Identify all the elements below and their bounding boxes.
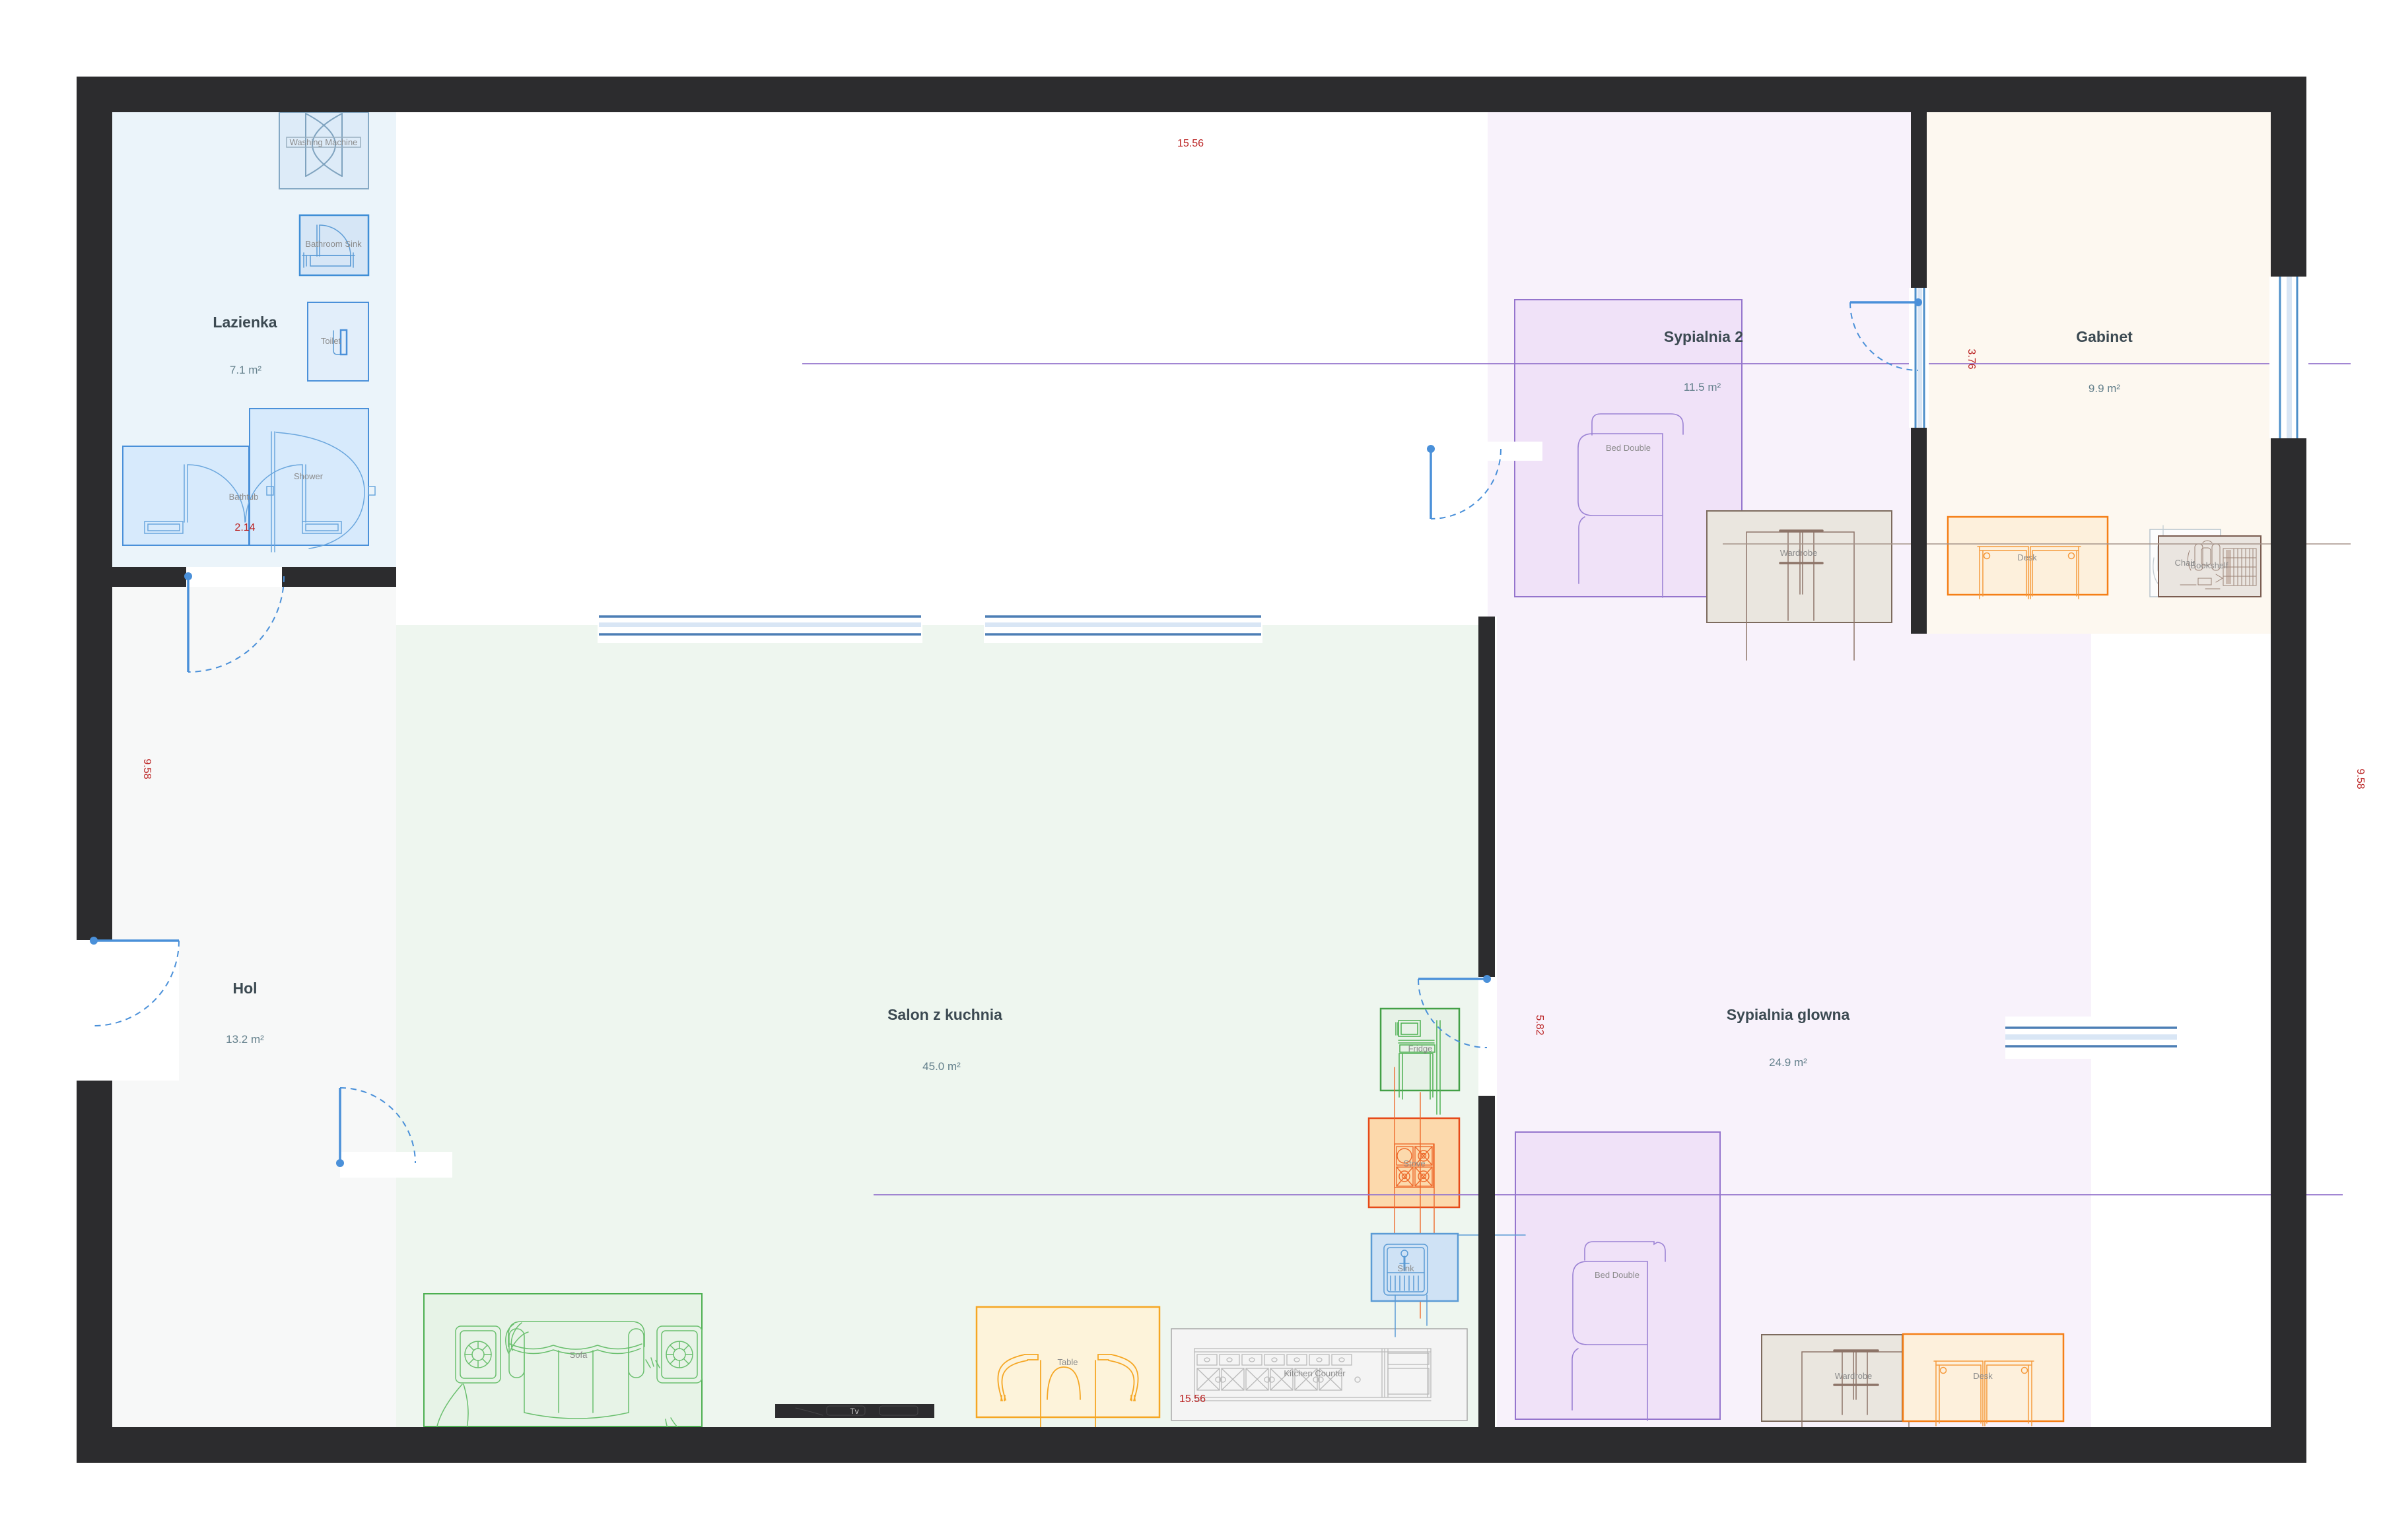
svg-text:Bed Double: Bed Double <box>1595 1270 1640 1280</box>
svg-text:15.56: 15.56 <box>1177 138 1204 149</box>
svg-text:11.5 m²: 11.5 m² <box>1684 381 1721 393</box>
svg-text:Sink: Sink <box>1397 1263 1414 1273</box>
svg-text:Sypialnia 2: Sypialnia 2 <box>1664 328 1743 345</box>
svg-text:Toilet: Toilet <box>321 336 341 346</box>
svg-text:Washing Machine: Washing Machine <box>290 137 358 147</box>
svg-text:3.76: 3.76 <box>1966 349 1977 369</box>
svg-text:Wardrobe: Wardrobe <box>1835 1371 1873 1381</box>
svg-text:7.1 m²: 7.1 m² <box>230 364 262 376</box>
svg-text:15.56: 15.56 <box>1179 1393 1206 1405</box>
svg-text:Bathroom Sink: Bathroom Sink <box>305 239 362 249</box>
svg-text:Bathtub: Bathtub <box>229 492 259 502</box>
svg-text:Stove: Stove <box>1403 1158 1425 1168</box>
svg-text:13.2 m²: 13.2 m² <box>226 1033 264 1046</box>
svg-text:Salon z kuchnia: Salon z kuchnia <box>887 1006 1002 1023</box>
svg-text:Gabinet: Gabinet <box>2076 328 2133 345</box>
svg-text:Kitchen Counter: Kitchen Counter <box>1284 1368 1346 1378</box>
svg-text:5.82: 5.82 <box>1534 1015 1545 1035</box>
svg-text:9.58: 9.58 <box>141 758 153 779</box>
svg-text:9.9 m²: 9.9 m² <box>2089 382 2121 395</box>
svg-text:24.9 m²: 24.9 m² <box>1769 1056 1807 1069</box>
svg-text:45.0 m²: 45.0 m² <box>922 1060 961 1073</box>
svg-text:2.14: 2.14 <box>234 522 255 533</box>
svg-text:Sofa: Sofa <box>570 1350 588 1360</box>
svg-text:Sypialnia glowna: Sypialnia glowna <box>1727 1006 1850 1023</box>
svg-text:Desk: Desk <box>2017 552 2037 562</box>
svg-text:Fridge: Fridge <box>1408 1044 1433 1054</box>
svg-text:Lazienka: Lazienka <box>213 314 277 331</box>
svg-text:Hol: Hol <box>232 980 257 997</box>
svg-text:Tv: Tv <box>850 1407 858 1416</box>
svg-text:9.58: 9.58 <box>2355 768 2366 789</box>
svg-text:Desk: Desk <box>1973 1371 1993 1381</box>
svg-text:Bookshelf: Bookshelf <box>2190 560 2228 570</box>
svg-text:Shower: Shower <box>294 471 324 481</box>
svg-text:Bed Double: Bed Double <box>1606 443 1651 453</box>
svg-text:Table: Table <box>1057 1357 1078 1367</box>
svg-text:Wardrobe: Wardrobe <box>1780 548 1818 558</box>
